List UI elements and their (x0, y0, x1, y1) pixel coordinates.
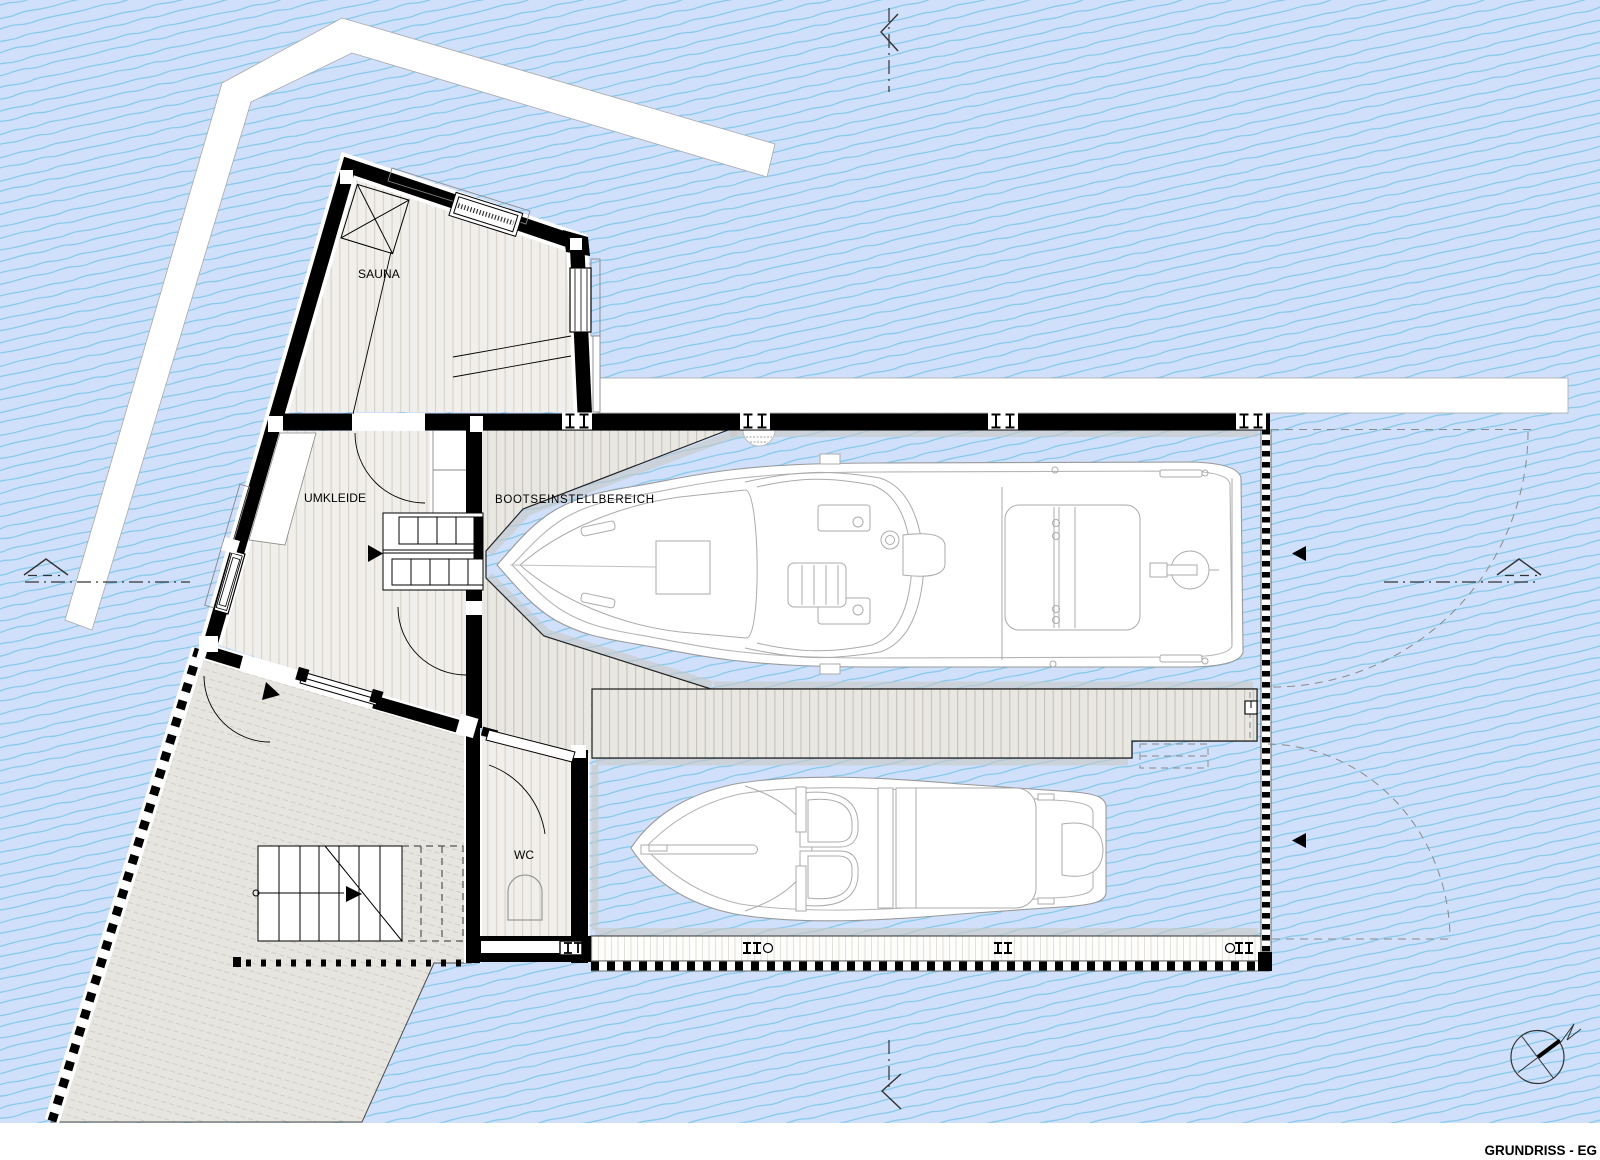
svg-text:WC: WC (514, 848, 534, 862)
svg-text:SAUNA: SAUNA (358, 267, 400, 281)
svg-text:GRUNDRISS - EG: GRUNDRISS - EG (1484, 1143, 1597, 1158)
svg-text:BOOTSEINSTELLBEREICH: BOOTSEINSTELLBEREICH (495, 494, 655, 506)
svg-text:UMKLEIDE: UMKLEIDE (304, 491, 366, 505)
